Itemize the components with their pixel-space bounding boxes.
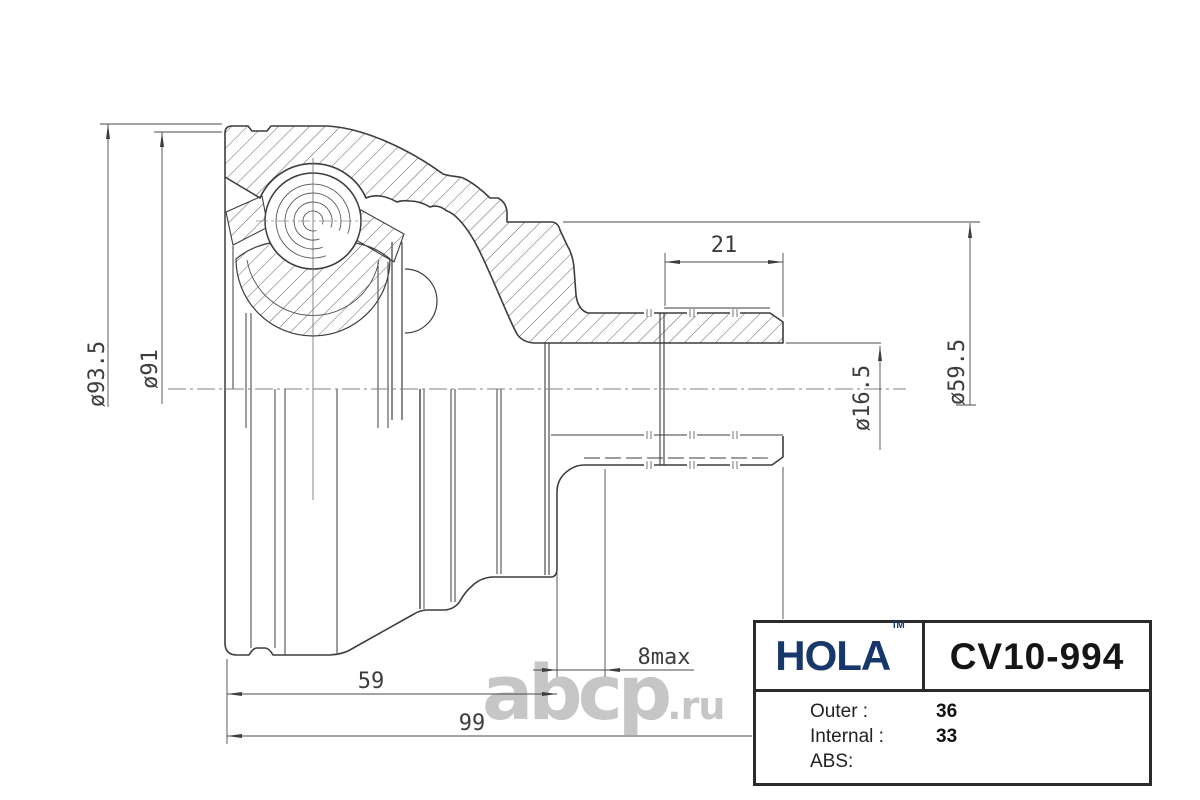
spec-value: 36 [936,701,957,722]
spec-value: 33 [936,726,957,747]
part-number-cell: CV10-994 [925,623,1149,689]
spec-row-outer: Outer :36 [810,699,1149,724]
spec-label: Outer : [810,699,936,724]
spec-label: ABS: [810,749,936,774]
brand-logo: HOLATM [775,635,902,677]
ball-bearing [256,158,370,500]
spec-label: Internal : [810,724,936,749]
spec-table: Outer :36 Internal :33 ABS: [756,692,1149,774]
housing-outline [225,389,783,655]
brand-cell: HOLATM [756,623,925,689]
technical-drawing-page: abcp.ru [0,0,1200,800]
dimension-body-length: 59 [358,669,385,694]
part-number: CV10-994 [950,638,1125,675]
dimension-rim-diameter: ø91 [138,349,163,389]
dimension-total-length: 99 [459,711,486,736]
trademark-symbol: TM [891,620,903,631]
title-block-header: HOLATM CV10-994 [756,623,1149,692]
dimension-thread-max: 8max [638,645,691,670]
dimension-outer-diameter: ø93.5 [85,341,110,407]
spec-row-abs: ABS: [810,749,1149,774]
dimension-flange-diameter: ø59.5 [945,339,970,405]
spec-row-internal: Internal :33 [810,724,1149,749]
dimension-bore-diameter: ø16.5 [850,365,875,431]
dimension-spline-length: 21 [711,233,738,258]
title-block: HOLATM CV10-994 Outer :36 Internal :33 A… [753,620,1152,786]
